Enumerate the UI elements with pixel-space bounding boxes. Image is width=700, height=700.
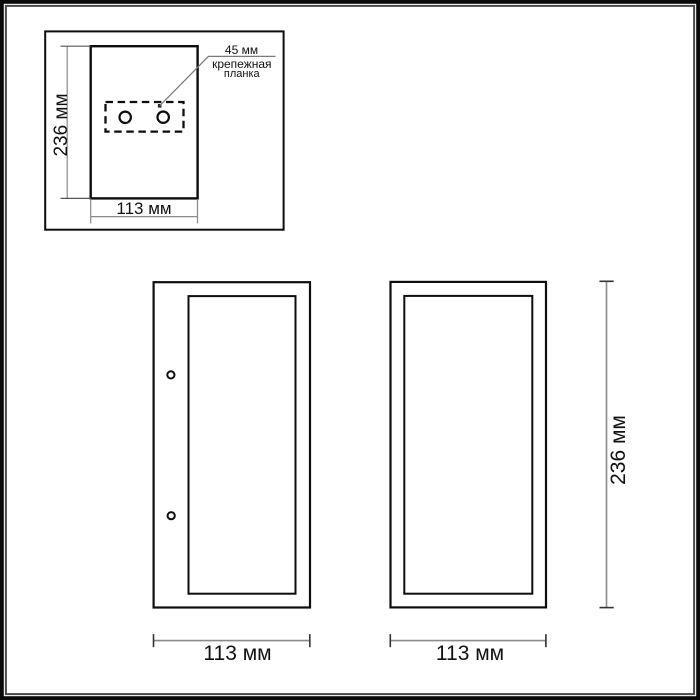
svg-text:113 мм: 113 мм <box>436 642 504 665</box>
svg-text:45 мм: 45 мм <box>225 43 258 57</box>
svg-text:113 мм: 113 мм <box>116 199 171 218</box>
svg-text:236 мм: 236 мм <box>51 93 72 156</box>
svg-text:планка: планка <box>224 68 261 80</box>
svg-text:113 мм: 113 мм <box>203 642 271 665</box>
svg-text:236 мм: 236 мм <box>607 415 630 485</box>
